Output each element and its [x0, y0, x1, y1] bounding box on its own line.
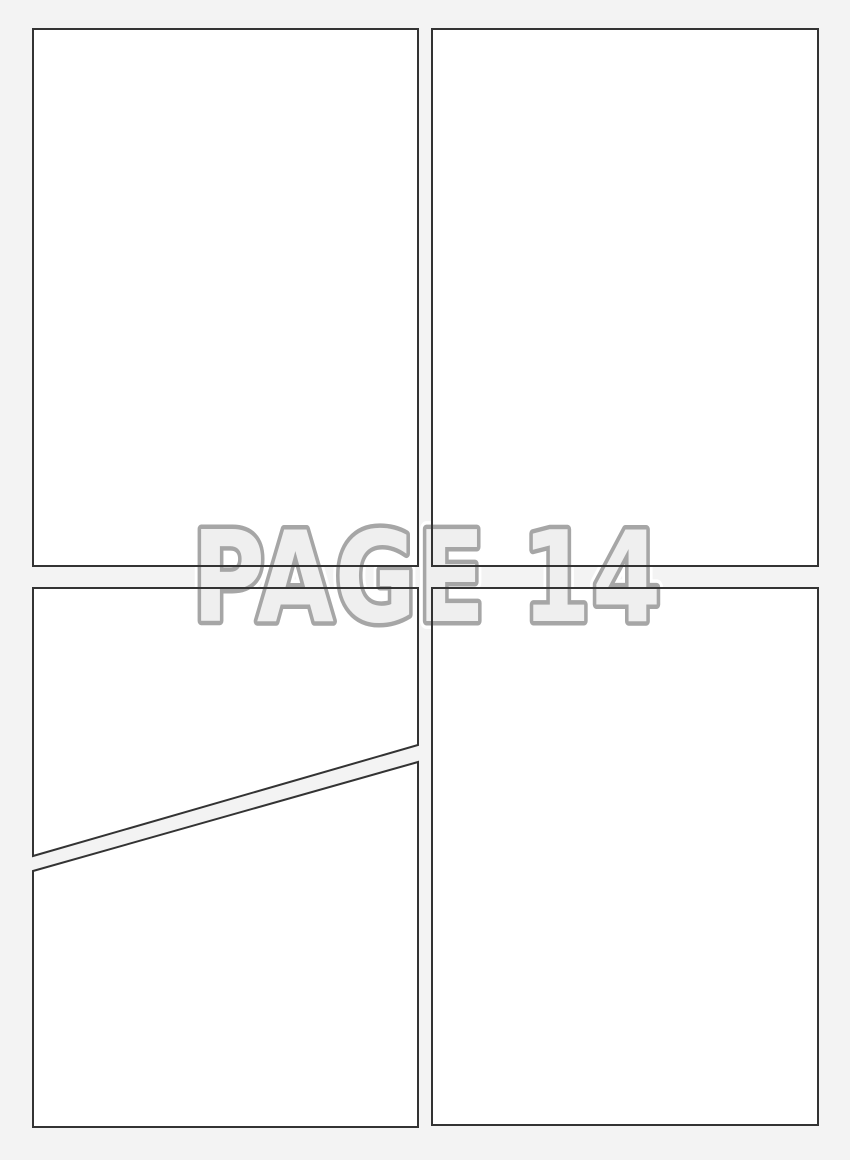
panel-fill-top-right [432, 29, 818, 566]
comic-page-template: PAGE 14 PAGE 14 [0, 0, 850, 1160]
panel-fill-bottom-right [432, 588, 818, 1125]
comic-page-canvas: PAGE 14 PAGE 14 [0, 0, 850, 1160]
panel-fill-top-left [33, 29, 418, 566]
page-watermark: PAGE 14 PAGE 14 [192, 504, 662, 651]
page-watermark-text: PAGE 14 [192, 504, 662, 651]
